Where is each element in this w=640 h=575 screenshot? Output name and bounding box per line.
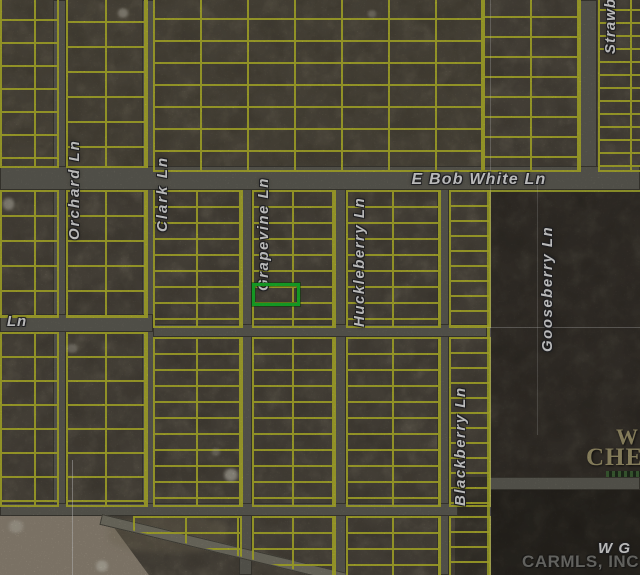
large-east-parcel-boundary (487, 190, 640, 575)
building-clearing (6, 520, 26, 533)
survey-section-line (72, 460, 73, 575)
street-label-orchard-ln: Orchard Ln (66, 124, 86, 256)
building-clearing (366, 10, 378, 18)
building-clearing (64, 344, 80, 353)
street-label-west-ln-partial: Ln (2, 313, 32, 330)
parcel-block (252, 516, 336, 575)
parcel-block (449, 190, 491, 328)
street-label-strawberry-ln-partial: Strawberry Ln (602, 0, 622, 62)
building-clearing (2, 196, 15, 212)
street-label-gooseberry-ln: Gooseberry Ln (539, 216, 559, 362)
subdivision-overlay-underline (606, 471, 640, 477)
building-clearing (222, 468, 240, 482)
parcel-block (66, 332, 148, 507)
parcel-block (153, 0, 483, 172)
street-label-grapevine-ln: Grapevine Ln (255, 167, 275, 301)
street-label-clark-ln: Clark Ln (154, 145, 174, 242)
parcel-block (346, 516, 441, 575)
subdivision-overlay-text-line2: CHEROKEE (586, 444, 640, 472)
building-clearing (116, 8, 130, 18)
subject-parcel-highlight[interactable] (252, 283, 300, 306)
parcel-block (252, 337, 336, 507)
parcel-block (483, 0, 581, 172)
parcel-block (0, 332, 59, 507)
street-label-huckleberry-ln: Huckleberry Ln (351, 192, 371, 332)
parcel-block (346, 337, 441, 507)
mls-watermark: CARMLS, INC (522, 552, 639, 572)
aerial-parcel-map: E Bob White LnLnOrchard LnClark LnGrapev… (0, 0, 640, 575)
parcel-block (449, 516, 491, 575)
street-label-blackberry-ln: Blackberry Ln (452, 379, 472, 513)
building-clearing (94, 560, 110, 572)
parcel-block (0, 0, 59, 168)
building-clearing (210, 448, 222, 456)
survey-section-line (487, 327, 640, 328)
survey-section-line (537, 185, 538, 435)
street-label-e-bob-white-ln: E Bob White Ln (396, 171, 562, 189)
survey-section-line (490, 0, 491, 575)
